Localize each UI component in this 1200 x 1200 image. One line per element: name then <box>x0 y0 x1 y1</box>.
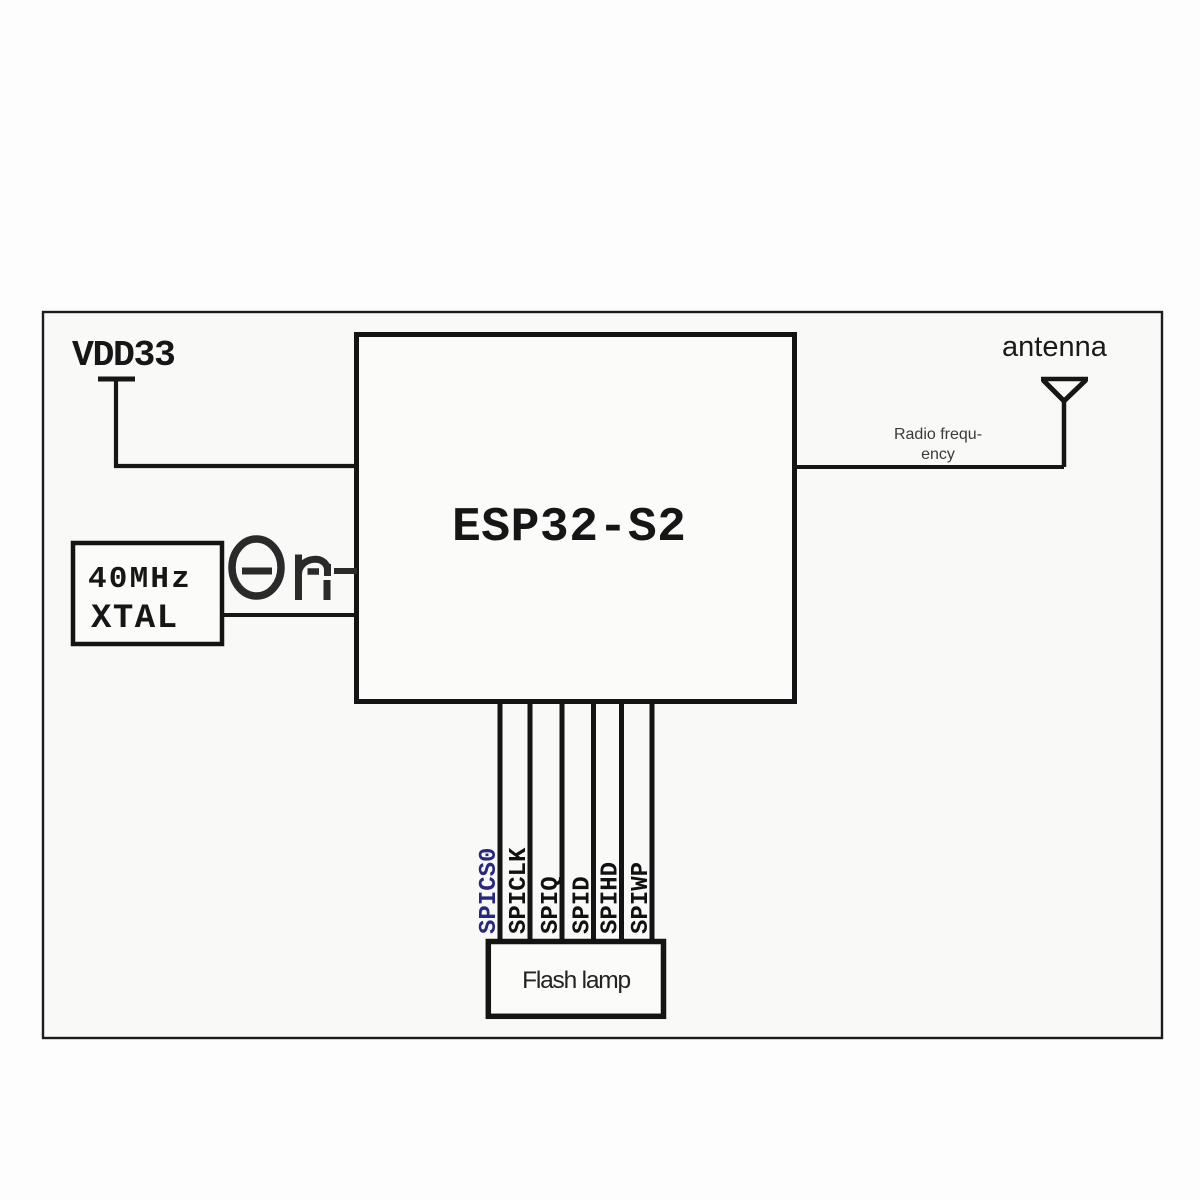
svg-text:VDD33: VDD33 <box>72 335 175 376</box>
svg-text:ency: ency <box>921 446 955 463</box>
svg-text:antenna: antenna <box>1002 331 1108 363</box>
svg-text:SPICLK: SPICLK <box>506 847 533 934</box>
svg-text:ESP32-S2: ESP32-S2 <box>452 501 686 555</box>
svg-text:SPIHD: SPIHD <box>598 862 625 934</box>
svg-text:Flash lamp: Flash lamp <box>522 967 630 994</box>
svg-text:SPICS0: SPICS0 <box>476 848 503 934</box>
svg-text:SPID: SPID <box>570 876 597 934</box>
svg-text:SPIQ: SPIQ <box>538 876 565 934</box>
svg-text:SPIWP: SPIWP <box>628 862 655 934</box>
svg-text:Radio frequ-: Radio frequ- <box>894 426 982 443</box>
svg-text:XTAL: XTAL <box>91 600 179 638</box>
svg-text:40MHz: 40MHz <box>88 562 192 597</box>
